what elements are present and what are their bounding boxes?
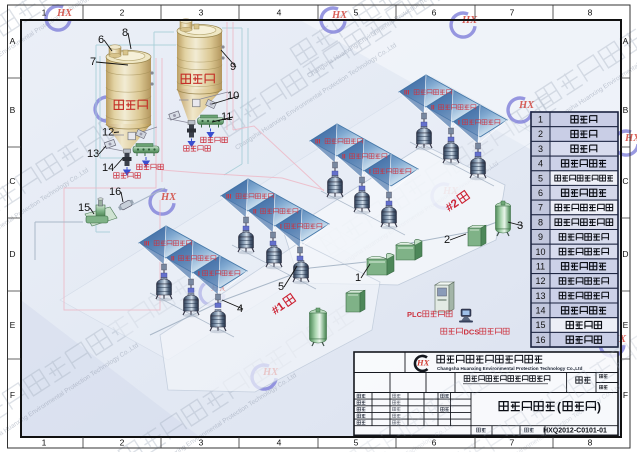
svg-text:1: 1 bbox=[42, 438, 47, 448]
svg-text:2: 2 bbox=[120, 8, 125, 18]
svg-text:2: 2 bbox=[444, 234, 450, 246]
svg-text:HX: HX bbox=[518, 100, 535, 111]
svg-text:III: III bbox=[315, 139, 321, 146]
svg-text:8: 8 bbox=[588, 438, 593, 448]
svg-text:6: 6 bbox=[538, 188, 543, 198]
svg-text:5: 5 bbox=[278, 281, 284, 293]
svg-text:7: 7 bbox=[90, 56, 96, 68]
svg-text:13: 13 bbox=[87, 148, 99, 160]
svg-text:6: 6 bbox=[98, 34, 104, 46]
svg-text:8: 8 bbox=[538, 217, 543, 227]
svg-text:7: 7 bbox=[538, 203, 543, 213]
svg-text:B: B bbox=[10, 105, 16, 115]
svg-text:4: 4 bbox=[538, 159, 543, 169]
svg-text:A: A bbox=[623, 36, 629, 46]
svg-text:PLC: PLC bbox=[407, 310, 423, 319]
svg-text:15: 15 bbox=[78, 202, 90, 214]
svg-text:C: C bbox=[9, 176, 15, 186]
svg-text:3: 3 bbox=[538, 144, 543, 154]
svg-text:6: 6 bbox=[432, 438, 437, 448]
svg-text:3: 3 bbox=[199, 8, 204, 18]
svg-text:E: E bbox=[623, 320, 629, 330]
svg-text:12: 12 bbox=[102, 127, 114, 139]
svg-text:HX: HX bbox=[160, 192, 177, 203]
svg-text:5: 5 bbox=[354, 8, 359, 18]
svg-text:II: II bbox=[431, 105, 435, 112]
svg-text:6: 6 bbox=[432, 8, 437, 18]
svg-text:HX: HX bbox=[416, 358, 430, 368]
svg-text:7: 7 bbox=[510, 8, 515, 18]
svg-text:D: D bbox=[9, 249, 15, 259]
svg-text:4: 4 bbox=[277, 438, 282, 448]
svg-text:8: 8 bbox=[122, 27, 128, 39]
svg-text:III: III bbox=[404, 90, 410, 97]
svg-text:C: C bbox=[622, 176, 628, 186]
svg-text:2: 2 bbox=[120, 438, 125, 448]
svg-text:5: 5 bbox=[354, 438, 359, 448]
svg-text:2: 2 bbox=[538, 129, 543, 139]
svg-text:15: 15 bbox=[535, 320, 545, 330]
svg-text:9: 9 bbox=[230, 61, 236, 73]
svg-text:I: I bbox=[280, 224, 282, 231]
svg-text:11: 11 bbox=[536, 261, 545, 271]
svg-text:Changsha Huanxing Environmenta: Changsha Huanxing Environmental Protecti… bbox=[437, 366, 583, 371]
svg-text:4: 4 bbox=[277, 8, 282, 18]
svg-text:16: 16 bbox=[535, 335, 545, 345]
svg-text:I: I bbox=[458, 120, 460, 127]
svg-text:10: 10 bbox=[227, 90, 239, 102]
svg-text:F: F bbox=[623, 390, 628, 400]
svg-text:D: D bbox=[622, 249, 628, 259]
svg-text:3: 3 bbox=[517, 220, 523, 232]
svg-text:9: 9 bbox=[538, 232, 543, 242]
svg-text:3: 3 bbox=[199, 438, 204, 448]
svg-text:4: 4 bbox=[237, 303, 243, 315]
svg-text:B: B bbox=[623, 105, 629, 115]
svg-text:16: 16 bbox=[109, 186, 121, 198]
svg-text:III: III bbox=[144, 241, 150, 248]
svg-text:II: II bbox=[253, 209, 257, 216]
svg-text:11: 11 bbox=[221, 111, 232, 123]
svg-text:10: 10 bbox=[535, 247, 545, 257]
svg-text:I: I bbox=[198, 271, 200, 278]
svg-text:I: I bbox=[369, 169, 371, 176]
svg-text:A: A bbox=[10, 36, 16, 46]
svg-text:13: 13 bbox=[535, 291, 545, 301]
svg-text:12: 12 bbox=[535, 276, 545, 286]
svg-text:E: E bbox=[10, 320, 16, 330]
svg-text:5: 5 bbox=[538, 173, 543, 183]
svg-text:1: 1 bbox=[42, 8, 47, 18]
svg-text:14: 14 bbox=[535, 306, 545, 316]
svg-text:II: II bbox=[342, 154, 346, 161]
svg-text:II: II bbox=[171, 256, 175, 263]
svg-text:F: F bbox=[10, 390, 15, 400]
svg-text:HX: HX bbox=[56, 8, 73, 19]
svg-text:14: 14 bbox=[102, 162, 114, 174]
svg-text:8: 8 bbox=[588, 8, 593, 18]
svg-text:1: 1 bbox=[538, 115, 543, 125]
svg-text:III: III bbox=[226, 194, 232, 201]
svg-text:DCS: DCS bbox=[464, 328, 480, 337]
svg-text:1: 1 bbox=[355, 272, 361, 284]
svg-text:7: 7 bbox=[510, 438, 515, 448]
